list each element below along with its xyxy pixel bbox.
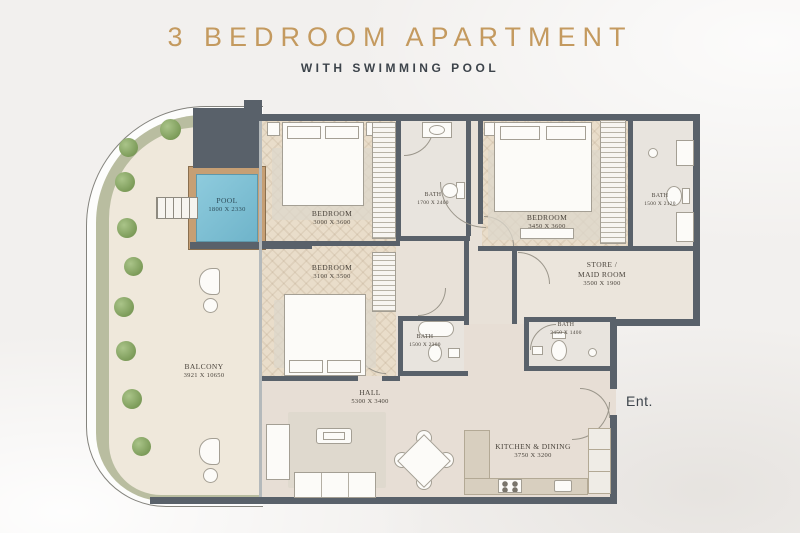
bedroom2-nightstand	[484, 122, 495, 136]
bath2-vanity	[676, 212, 694, 242]
tree-icon	[160, 119, 181, 140]
kitchen-dining-label: KITCHEN & DINING 3750 X 3200	[478, 442, 588, 460]
bath4-sink	[532, 346, 543, 355]
room-name: HALL	[330, 388, 410, 398]
room-name: BATH	[407, 192, 459, 200]
bath1-sink-basin	[429, 125, 445, 135]
pool-label: POOL 1800 X 2330	[196, 196, 258, 214]
tree-icon	[122, 389, 142, 409]
bedroom-middle-label: BEDROOM 3100 X 3500	[292, 263, 372, 281]
room-dims: 1500 X 2120	[634, 201, 686, 208]
bedroom2-pillow	[546, 126, 586, 140]
bath-top-right-label: BATH 1500 X 2120	[634, 193, 686, 208]
room-dims: 3450 X 3600	[507, 223, 587, 231]
pool-dims: 1800 X 2330	[196, 206, 258, 214]
bedroom3-pillow	[289, 360, 323, 373]
balcony-side-table	[203, 468, 218, 483]
room-name: BEDROOM	[292, 263, 372, 273]
balcony-label: BALCONY 3921 X 10650	[164, 362, 244, 380]
tree-icon	[117, 218, 137, 238]
bedroom3-wardrobe	[372, 252, 396, 312]
room-name: BATH	[540, 322, 592, 330]
room-dims: 3750 X 3200	[478, 452, 588, 460]
right-wall-upper	[693, 114, 700, 326]
pool-ladder	[156, 197, 198, 219]
bath4-shower-drain	[588, 348, 597, 357]
room-name: BEDROOM	[507, 213, 587, 223]
corridor-right-wall	[464, 241, 469, 325]
store-left-wall	[512, 246, 517, 324]
pool-block-notch	[244, 100, 262, 110]
bottom-wall	[150, 497, 617, 504]
hall-label: HALL 5300 X 3400	[330, 388, 410, 406]
room-name: BATH	[634, 193, 686, 201]
tree-icon	[132, 437, 151, 456]
bath4-bottom-wall	[524, 366, 616, 371]
tree-icon	[114, 297, 134, 317]
bedroom3-bottom-wall-b	[382, 376, 400, 381]
room-dims: 3100 X 3500	[292, 273, 372, 281]
room-dims: 3000 X 3600	[292, 219, 372, 227]
bath-middle-label: BATH 1500 X 2300	[402, 334, 448, 349]
right-wall-lower-a	[610, 319, 617, 389]
bedroom1-nightstand	[267, 122, 280, 136]
bedroom1-pillow	[287, 126, 321, 139]
hall-tv-console	[266, 424, 290, 480]
bedroom3-pillow	[327, 360, 361, 373]
balcony-lounge-chair	[199, 438, 220, 465]
kitchen-stove	[498, 479, 522, 493]
room-name: BALCONY	[164, 362, 244, 372]
balcony-lounge-chair	[199, 268, 220, 295]
pool-name: POOL	[196, 196, 258, 206]
bath3-sink	[448, 348, 460, 358]
hall-sofa	[294, 472, 376, 498]
bedroom1-wardrobe	[372, 122, 396, 239]
pool-service-block	[193, 108, 262, 168]
bath-store-label: BATH 2450 X 1400	[540, 322, 592, 337]
tree-icon	[124, 257, 143, 276]
bath2-shower-drain	[648, 148, 658, 158]
balcony-side-table	[203, 298, 218, 313]
store-bottom-wall	[610, 319, 700, 326]
bedroom1-pillow	[325, 126, 359, 139]
floorplan-page: 3 BEDROOM APARTMENT WITH SWIMMING POOL	[0, 0, 800, 533]
page-title: 3 BEDROOM APARTMENT	[0, 22, 800, 53]
balcony-glass-wall	[259, 121, 262, 497]
bath-top-middle-label: BATH 1700 X 2400	[407, 192, 459, 207]
kitchen-tall-units	[588, 428, 611, 494]
bath4-left-wall	[524, 317, 529, 371]
bath4-toilet-bowl	[551, 340, 567, 361]
store-maid-room-label: STORE / MAID ROOM 3500 X 1900	[556, 260, 648, 288]
room-dims: 1700 X 2400	[407, 200, 459, 207]
entrance-label: Ent.	[626, 393, 653, 409]
room-name: BATH	[402, 334, 448, 342]
bedroom1-bottom-wall	[262, 241, 400, 246]
kitchen-sink	[554, 480, 572, 492]
bedroom-top-left-label: BEDROOM 3000 X 3600	[292, 209, 372, 227]
tree-icon	[115, 172, 135, 192]
room-name: STORE /	[556, 260, 648, 270]
room-dims: 2450 X 1400	[540, 330, 592, 337]
bedroom1-right-wall	[396, 114, 401, 241]
room-dims: 5300 X 3400	[330, 398, 410, 406]
bath2-cabinet	[676, 140, 694, 166]
tree-icon	[119, 138, 138, 157]
hall-coffee-table-inner	[323, 432, 345, 440]
right-wall-lower-b	[610, 415, 617, 503]
room-name: KITCHEN & DINING	[478, 442, 588, 452]
room-dims: 3500 X 1900	[556, 280, 648, 288]
bath1-bottom-wall	[400, 236, 470, 241]
room-name: MAID ROOM	[556, 270, 648, 280]
bedroom-top-right-label: BEDROOM 3450 X 3600	[507, 213, 587, 231]
bath3-bottom-wall	[398, 371, 468, 376]
room-dims: 3921 X 10650	[164, 372, 244, 380]
bedroom3-bottom-wall-a	[262, 376, 358, 381]
room-name: BEDROOM	[292, 209, 372, 219]
bedroom2-wardrobe	[600, 120, 626, 244]
room-dims: 1500 X 2300	[402, 342, 448, 349]
page-subtitle: WITH SWIMMING POOL	[0, 61, 800, 75]
tree-icon	[116, 341, 136, 361]
bath2-left-wall	[628, 114, 633, 246]
bedroom2-pillow	[500, 126, 540, 140]
